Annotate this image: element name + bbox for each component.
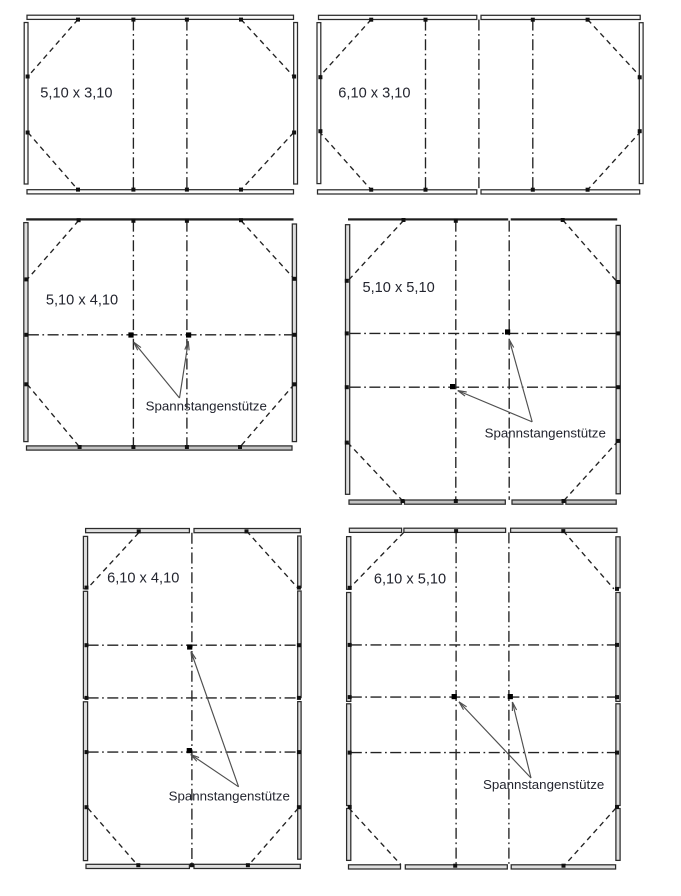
svg-text:Spannstangenstütze: Spannstangenstütze	[146, 399, 267, 414]
svg-text:6,10 x 3,10: 6,10 x 3,10	[338, 86, 410, 102]
svg-text:6,10 x 4,10: 6,10 x 4,10	[107, 570, 179, 586]
svg-text:Spannstangenstütze: Spannstangenstütze	[169, 789, 290, 804]
svg-text:Spannstangenstütze: Spannstangenstütze	[485, 425, 606, 440]
svg-text:6,10 x 5,10: 6,10 x 5,10	[374, 572, 446, 588]
svg-text:5,10 x 3,10: 5,10 x 3,10	[40, 86, 112, 102]
svg-text:Spannstangenstütze: Spannstangenstütze	[483, 777, 604, 792]
svg-text:5,10 x 5,10: 5,10 x 5,10	[363, 280, 435, 296]
svg-text:5,10 x 4,10: 5,10 x 4,10	[46, 292, 118, 308]
